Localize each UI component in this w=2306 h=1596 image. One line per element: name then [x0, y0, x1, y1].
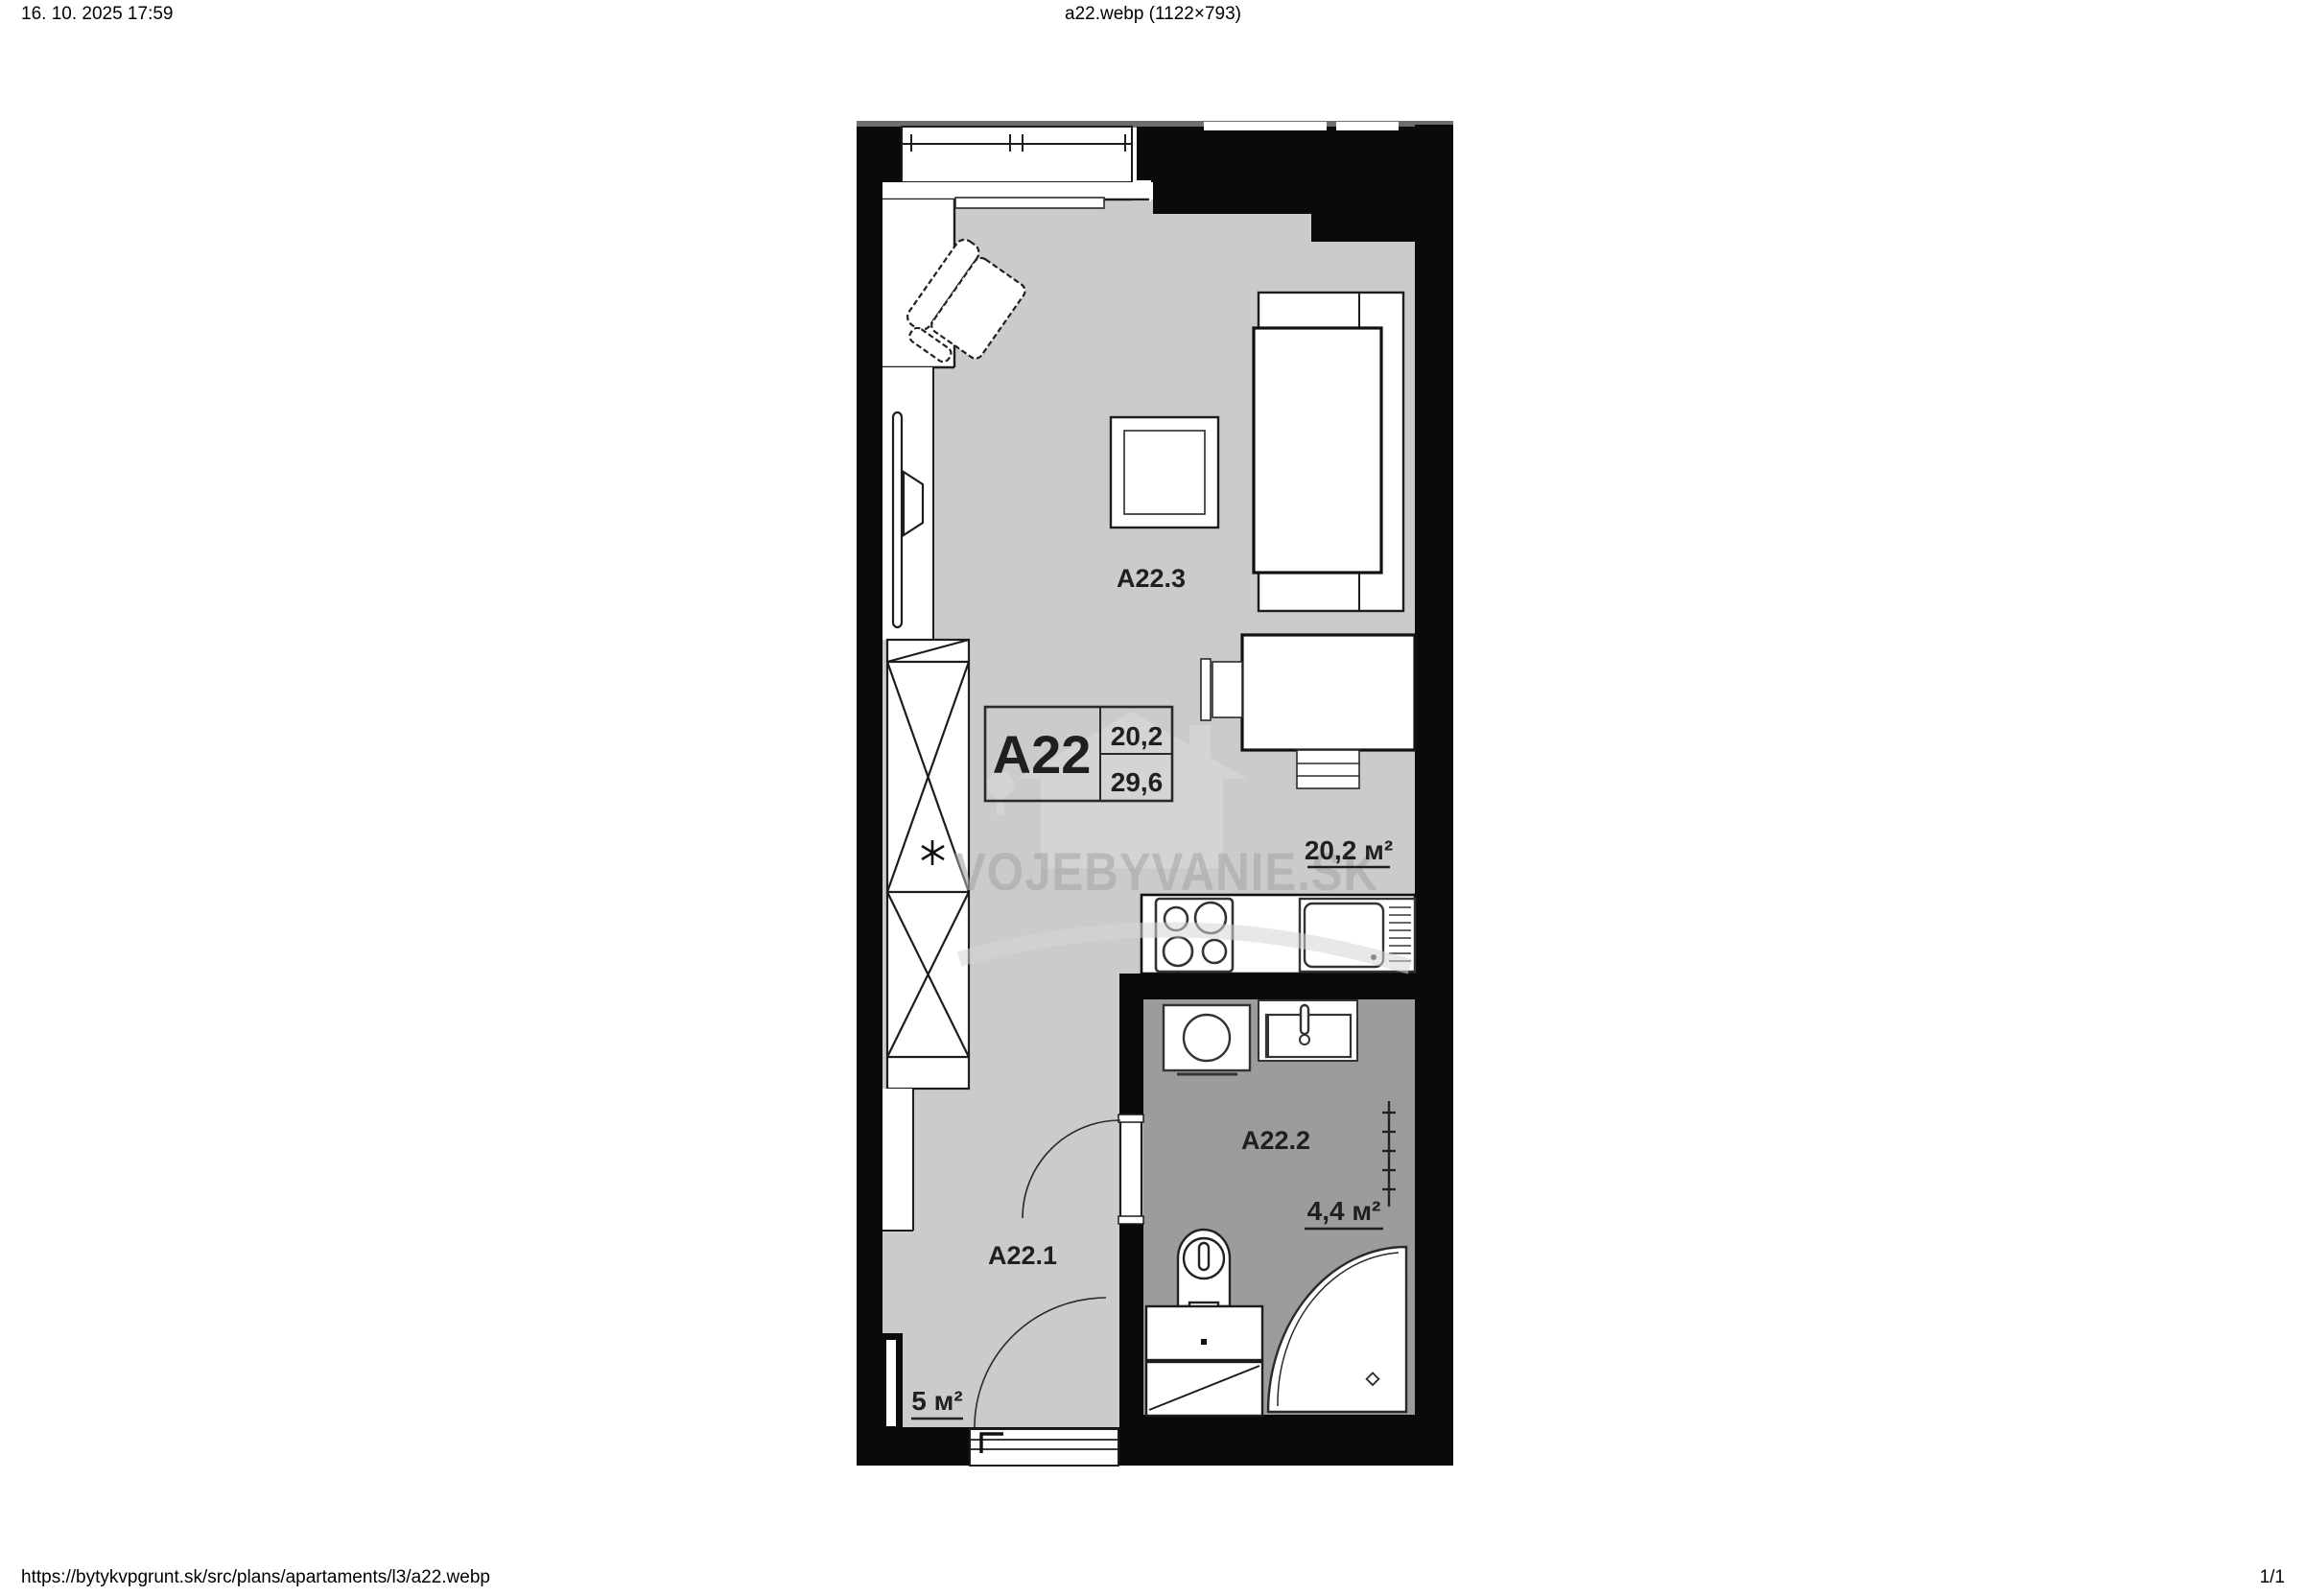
area-label-living: 20,2 м² [1305, 835, 1393, 865]
bathroom-wall-top [1119, 974, 1415, 999]
desk-chair [1201, 659, 1242, 720]
bed [1254, 293, 1403, 611]
coffee-table [1111, 417, 1218, 528]
room-label-living: A22.3 [1117, 564, 1186, 593]
unit-area-main: 20,2 [1111, 721, 1164, 751]
wall-strip [882, 1089, 913, 1231]
vanity [1146, 1306, 1262, 1416]
room-label-hall: A22.1 [988, 1241, 1057, 1270]
unit-area-total: 29,6 [1111, 767, 1164, 797]
area-label-bathroom: 4,4 м² [1307, 1196, 1381, 1226]
bathroom-wall-left-lower [1119, 1218, 1143, 1427]
shelf [955, 198, 1104, 208]
washing-machine [1164, 1005, 1250, 1074]
window [902, 127, 1132, 182]
print-footer-page: 1/1 [2260, 1567, 2285, 1588]
floor-plan-image: VOJEBYVANIE.SK A22 20,2 29,6 A22.3 20,2 … [0, 0, 2306, 1596]
print-preview-page: { "header": { "datetime": "16. 10. 2025 … [0, 0, 2306, 1596]
unit-id: A22 [993, 724, 1092, 785]
toilet [1178, 1230, 1230, 1310]
print-footer-url: https://bytykvpgrunt.sk/src/plans/aparta… [21, 1567, 490, 1588]
tv [882, 367, 933, 640]
bathroom-wall-left-upper [1119, 999, 1143, 1120]
bathroom-sink [1259, 1000, 1357, 1061]
room-label-bathroom: A22.2 [1241, 1126, 1310, 1155]
area-label-hall: 5 м² [911, 1386, 962, 1416]
neighbor-window [1204, 122, 1399, 130]
print-footer: https://bytykvpgrunt.sk/src/plans/aparta… [0, 1563, 2306, 1588]
